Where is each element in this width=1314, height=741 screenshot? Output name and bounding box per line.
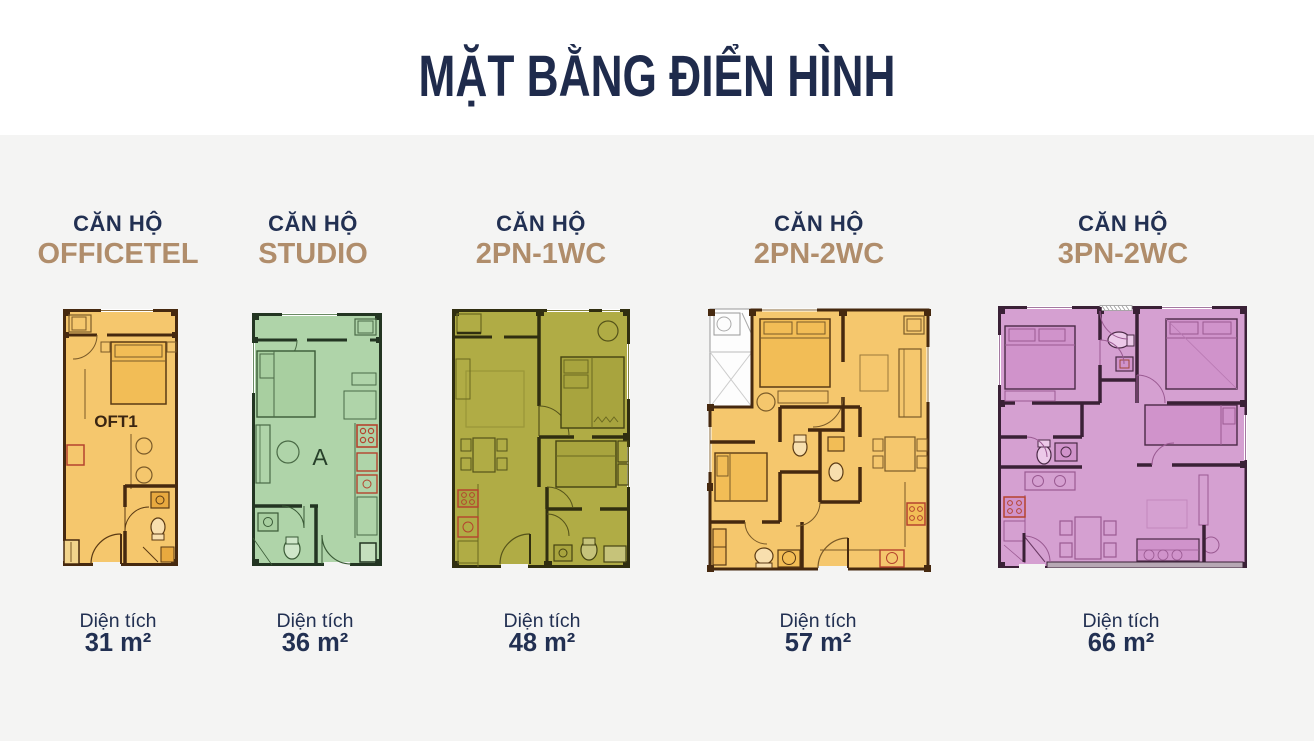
svg-text:OFT1: OFT1	[94, 412, 137, 431]
svg-text:A: A	[312, 444, 328, 470]
